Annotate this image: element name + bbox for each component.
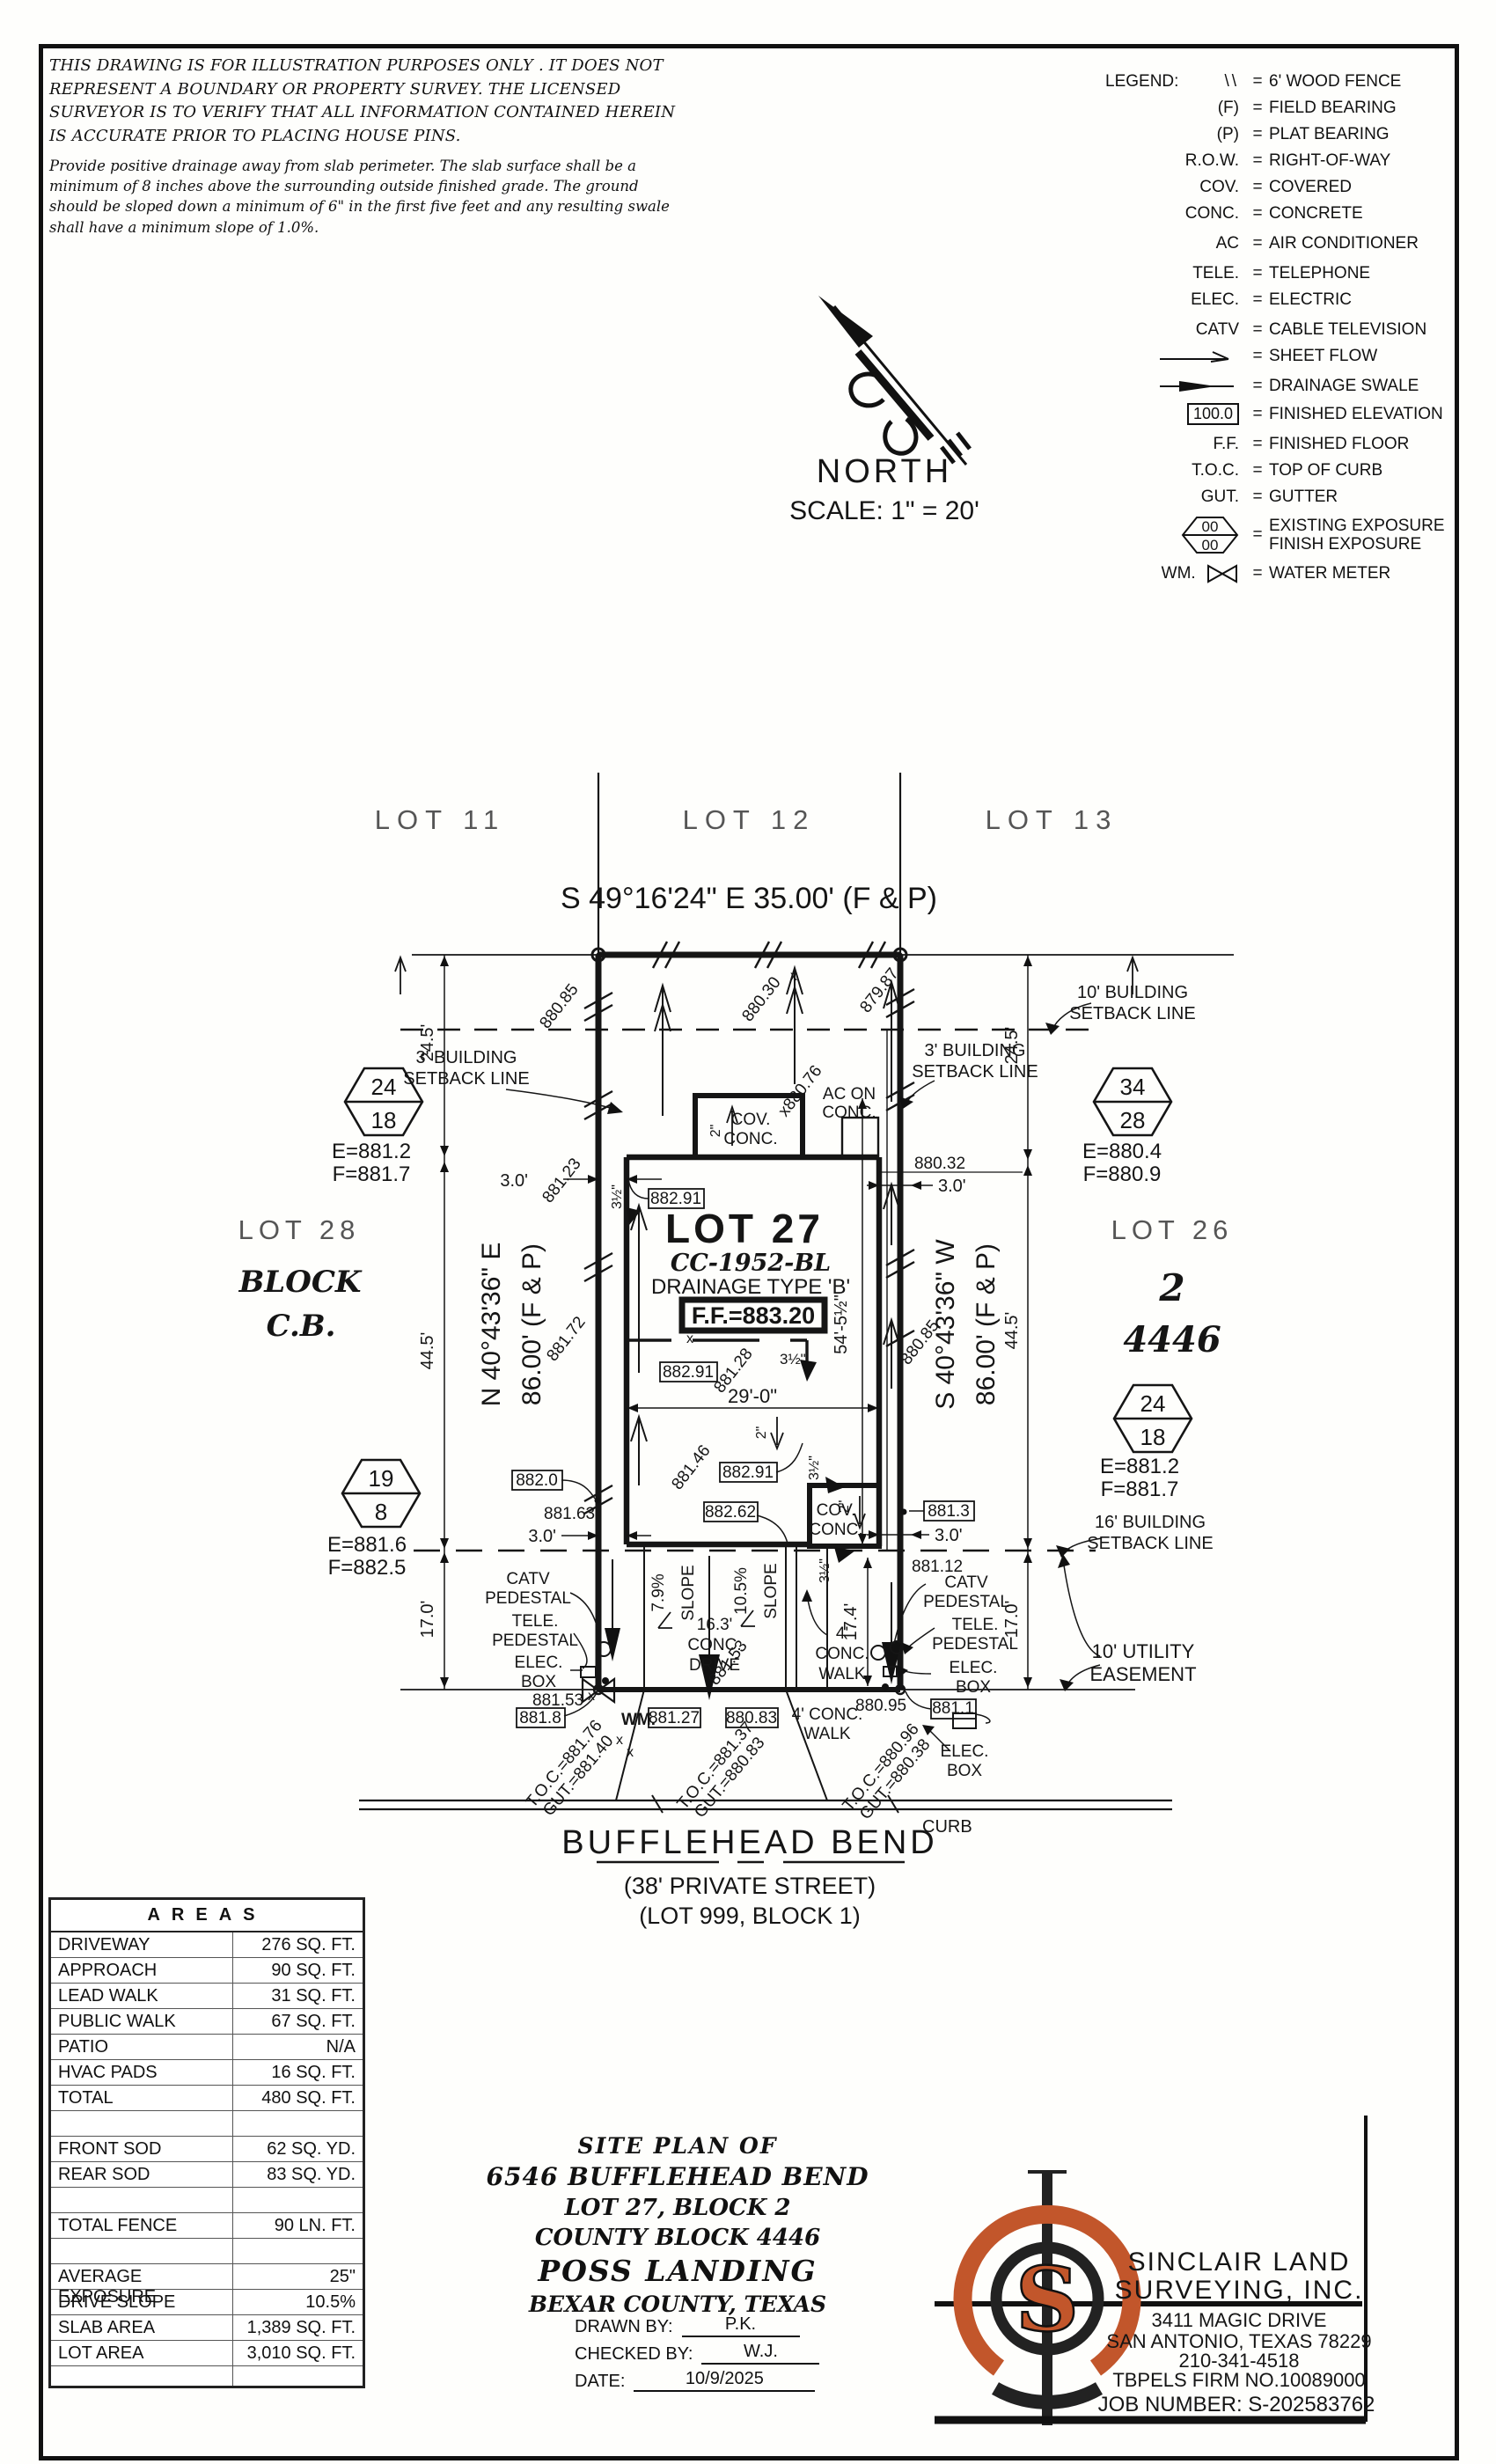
svg-text:WALK: WALK [803,1725,850,1743]
svg-text:880.85: 880.85 [536,980,582,1032]
hex-val: 28 [1120,1107,1146,1133]
svg-text:ELEC.: ELEC. [941,1742,989,1761]
table-row-blank [51,2111,363,2137]
svg-text:24.5': 24.5' [418,1024,437,1062]
svg-text:17.0': 17.0' [418,1601,437,1639]
table-row: TOTAL480 SQ. FT. [51,2086,363,2111]
svg-text:BOX: BOX [521,1673,556,1691]
svg-text:881.63: 881.63 [544,1505,595,1523]
table-row-blank [51,2188,363,2213]
company-name-1: SINCLAIR LAND [1128,2248,1351,2277]
svg-text:882.0: 882.0 [516,1471,558,1490]
svg-text:881.27: 881.27 [649,1709,700,1727]
svg-text:3.0': 3.0' [938,1177,966,1196]
bearing-top: S 49°16'24" E 35.00' (F & P) [561,882,937,915]
svg-text:CONC.: CONC. [687,1636,741,1654]
table-row-blank [51,2366,363,2386]
svg-text:2": 2" [754,1426,769,1440]
hex-val: 24 [1140,1390,1166,1417]
table-row: HVAC PADS16 SQ. FT. [51,2060,363,2086]
svg-text:PEDESTAL: PEDESTAL [492,1632,578,1650]
svg-text:PEDESTAL: PEDESTAL [932,1635,1018,1654]
svg-text:WM.: WM. [621,1711,656,1729]
hex-val: 24 [371,1074,397,1100]
table-row-blank [51,2239,363,2264]
exposure-e: E=880.4 [1082,1140,1162,1163]
svg-text:CATV: CATV [944,1573,988,1592]
svg-text:EASEMENT: EASEMENT [1089,1663,1196,1685]
table-row: REAR SOD83 SQ. YD. [51,2162,363,2188]
svg-text:3½": 3½" [807,1456,822,1480]
svg-text:CONC.: CONC. [815,1645,869,1663]
svg-text:882.91: 882.91 [722,1463,774,1482]
title-line-5: POSS LANDING [480,2254,876,2288]
table-row: AVERAGE EXPOSURE25" [51,2264,363,2290]
lot12-label: LOT 12 [683,804,816,835]
checked-by-row: CHECKED BY: W.J. [575,2342,856,2365]
svg-text:881.72: 881.72 [543,1313,589,1365]
table-row: PUBLIC WALK67 SQ. FT. [51,2009,363,2035]
svg-text:3.0': 3.0' [528,1527,556,1546]
table-row: APPROACH90 SQ. FT. [51,1958,363,1984]
north-label: NORTH [817,453,952,490]
job-number: JOB NUMBER: S-202583762 [1098,2393,1375,2416]
company-firm: TBPELS FIRM NO.10089000 [1112,2369,1365,2391]
svg-text:BOX: BOX [956,1678,991,1697]
table-row: SLAB AREA1,389 SQ. FT. [51,2315,363,2341]
svg-text:COV.: COV. [731,1111,771,1129]
svg-text:881.3: 881.3 [928,1502,970,1521]
svg-text:881.23: 881.23 [539,1155,584,1206]
svg-text:44.5': 44.5' [418,1332,437,1370]
hex-val: 34 [1120,1074,1146,1100]
drainage-type-label: DRAINAGE TYPE 'B' [651,1275,850,1299]
svg-text:PEDESTAL: PEDESTAL [923,1593,1009,1611]
table-row: FRONT SOD62 SQ. YD. [51,2137,363,2162]
svg-text:TELE.: TELE. [512,1612,559,1631]
svg-text:880.32: 880.32 [914,1155,965,1173]
checked-by-value: W.J. [701,2342,819,2365]
table-row: TOTAL FENCE90 LN. FT. [51,2213,363,2239]
svg-text:COV.: COV. [817,1501,856,1520]
title-block: SITE PLAN OF 6546 BUFFLEHEAD BEND LOT 27… [480,2133,876,2317]
north-arrow [818,296,970,465]
svg-text:x: x [686,1331,693,1346]
svg-text:SETBACK LINE: SETBACK LINE [1087,1534,1213,1553]
company-address-1: 3411 MAGIC DRIVE [1152,2309,1327,2331]
areas-table: AREAS DRIVEWAY276 SQ. FT. APPROACH90 SQ.… [48,1897,365,2388]
svg-text:PEDESTAL: PEDESTAL [485,1589,571,1608]
svg-text:3½": 3½" [610,1184,625,1209]
svg-text:ELEC.: ELEC. [515,1654,563,1672]
svg-text:879.87: 879.87 [856,964,902,1016]
logo-letter: S [1016,2248,1079,2351]
svg-text:3.0': 3.0' [935,1526,963,1545]
svg-text:882.62: 882.62 [705,1503,756,1522]
lot28-label: LOT 28 [238,1214,361,1245]
cb4446-label: 4446 [1123,1319,1221,1360]
svg-text:CONC.: CONC. [723,1130,777,1148]
table-row: PATION/A [51,2035,363,2060]
svg-text:CONC.: CONC. [822,1104,876,1122]
exposure-e: E=881.6 [327,1533,407,1557]
lot26-label: LOT 26 [1111,1214,1234,1245]
plat-labels: LOT 11 LOT 12 LOT 13 S 49°16'24" E 35.00… [238,804,1234,1929]
bearing-right-dist: 86.00' (F & P) [972,1243,1001,1405]
date-value: 10/9/2025 [634,2369,815,2392]
street-name: BUFFLEHEAD BEND [561,1824,937,1861]
table-row: DRIVEWAY276 SQ. FT. [51,1932,363,1958]
cc-label: CC-1952-BL [671,1250,831,1277]
svg-text:3.0': 3.0' [500,1171,528,1191]
lot13-label: LOT 13 [986,804,1118,835]
svg-text:3½": 3½" [780,1351,806,1368]
svg-text:16.3': 16.3' [697,1616,733,1634]
svg-text:881.46: 881.46 [668,1441,714,1493]
lot27-label: LOT 27 [665,1206,824,1251]
exposure-e: E=881.2 [1100,1455,1179,1478]
toc-label-1: T.O.C.=881.76 GUT.=881.40 [523,1717,620,1823]
svg-text:4' CONC.: 4' CONC. [792,1705,863,1724]
utility-easement: 10' UTILITY [1092,1640,1195,1662]
cb-label: C.B. [267,1309,336,1344]
svg-text:54'-5½": 54'-5½" [832,1294,851,1354]
bearing-left: N 40°43'36" E [477,1243,506,1407]
svg-text:BOX: BOX [947,1762,982,1780]
company-name-2: SURVEYING, INC. [1115,2276,1364,2305]
svg-text:4': 4' [836,1624,848,1643]
setback-16: 16' BUILDING [1095,1513,1206,1532]
svg-text:SLOPE: SLOPE [762,1563,781,1618]
street-sub2: (LOT 999, BLOCK 1) [639,1903,861,1929]
hex-val: 19 [369,1465,394,1492]
svg-text:29'-0": 29'-0" [728,1385,777,1407]
hex-val: 8 [375,1499,387,1525]
drawn-by-label: DRAWN BY: [575,2317,673,2337]
block2-label: 2 [1158,1266,1184,1309]
svg-text:880.30: 880.30 [738,973,784,1025]
svg-text:880.95: 880.95 [855,1697,906,1715]
street-sub1: (38' PRIVATE STREET) [624,1873,876,1899]
svg-text:24.5': 24.5' [1002,1027,1022,1065]
svg-text:DRIVE: DRIVE [689,1656,740,1675]
hex-val: 18 [1140,1424,1166,1450]
svg-text:AC ON: AC ON [823,1085,876,1104]
svg-text:880.83: 880.83 [726,1709,777,1727]
exposure-e: E=881.2 [332,1140,411,1163]
title-line-1: SITE PLAN OF [480,2133,876,2159]
ff-value: F.F.=883.20 [692,1302,815,1329]
exposure-f: F=881.7 [333,1162,411,1186]
lot11-label: LOT 11 [375,804,506,835]
svg-text:SETBACK LINE: SETBACK LINE [403,1069,529,1089]
setback-10: 10' BUILDING [1077,983,1188,1002]
svg-text:x: x [588,1689,595,1704]
title-line-4: COUNTY BLOCK 4446 [480,2225,876,2251]
svg-text:2": 2" [708,1125,723,1138]
title-line-2: 6546 BUFFLEHEAD BEND [480,2162,876,2191]
checked-by-label: CHECKED BY: [575,2344,693,2365]
svg-text:ELEC.: ELEC. [950,1659,998,1677]
svg-text:882.91: 882.91 [650,1190,701,1208]
svg-text:x: x [790,969,797,984]
date-label: DATE: [575,2372,625,2392]
title-line-6: BEXAR COUNTY, TEXAS [480,2292,876,2317]
svg-text:882.91: 882.91 [663,1363,714,1382]
svg-text:x: x [627,1745,634,1760]
svg-text:881.8: 881.8 [519,1709,561,1727]
survey-sheet: THIS DRAWING IS FOR ILLUSTRATION PURPOSE… [0,0,1496,2464]
svg-text:CATV: CATV [506,1570,550,1588]
exposure-f: F=881.7 [1101,1478,1179,1501]
scale-label: SCALE: 1" = 20' [789,496,979,525]
title-line-3: LOT 27, BLOCK 2 [480,2195,876,2221]
company-info: SINCLAIR LAND SURVEYING, INC. 3411 MAGIC… [1098,2248,1375,2416]
table-row: LOT AREA3,010 SQ. FT. [51,2341,363,2366]
drawn-by-row: DRAWN BY: P.K. [575,2314,856,2337]
title-block-fields: DRAWN BY: P.K. CHECKED BY: W.J. DATE: 10… [575,2314,856,2396]
bearing-left-dist: 86.00' (F & P) [517,1243,546,1405]
svg-text:CONC.: CONC. [809,1521,862,1539]
drawn-by-value: P.K. [682,2314,800,2337]
areas-title: AREAS [51,1900,363,1932]
date-row: DATE: 10/9/2025 [575,2369,856,2392]
svg-text:881.1: 881.1 [932,1699,974,1718]
exposure-f: F=882.5 [328,1556,407,1580]
svg-text:TELE.: TELE. [952,1616,999,1634]
svg-text:3½": 3½" [818,1558,832,1583]
toc-label-3: T.O.C.=880.96 GUT.=880.38 [840,1720,937,1827]
svg-text:SLOPE: SLOPE [679,1565,698,1620]
hex-val: 18 [371,1107,397,1133]
exposure-f: F=880.9 [1083,1162,1162,1186]
svg-text:x: x [616,1733,623,1748]
svg-text:SETBACK LINE: SETBACK LINE [1069,1004,1195,1023]
svg-text:7.9%: 7.9% [649,1573,668,1611]
table-row: DRIVE SLOPE10.5% [51,2290,363,2315]
block-label: BLOCK [238,1265,363,1300]
svg-text:44.5': 44.5' [1002,1312,1022,1350]
svg-text:10.5%: 10.5% [732,1567,751,1615]
svg-text:WALK: WALK [818,1665,865,1683]
table-row: LEAD WALK31 SQ. FT. [51,1984,363,2009]
svg-text:881.53: 881.53 [532,1691,583,1710]
